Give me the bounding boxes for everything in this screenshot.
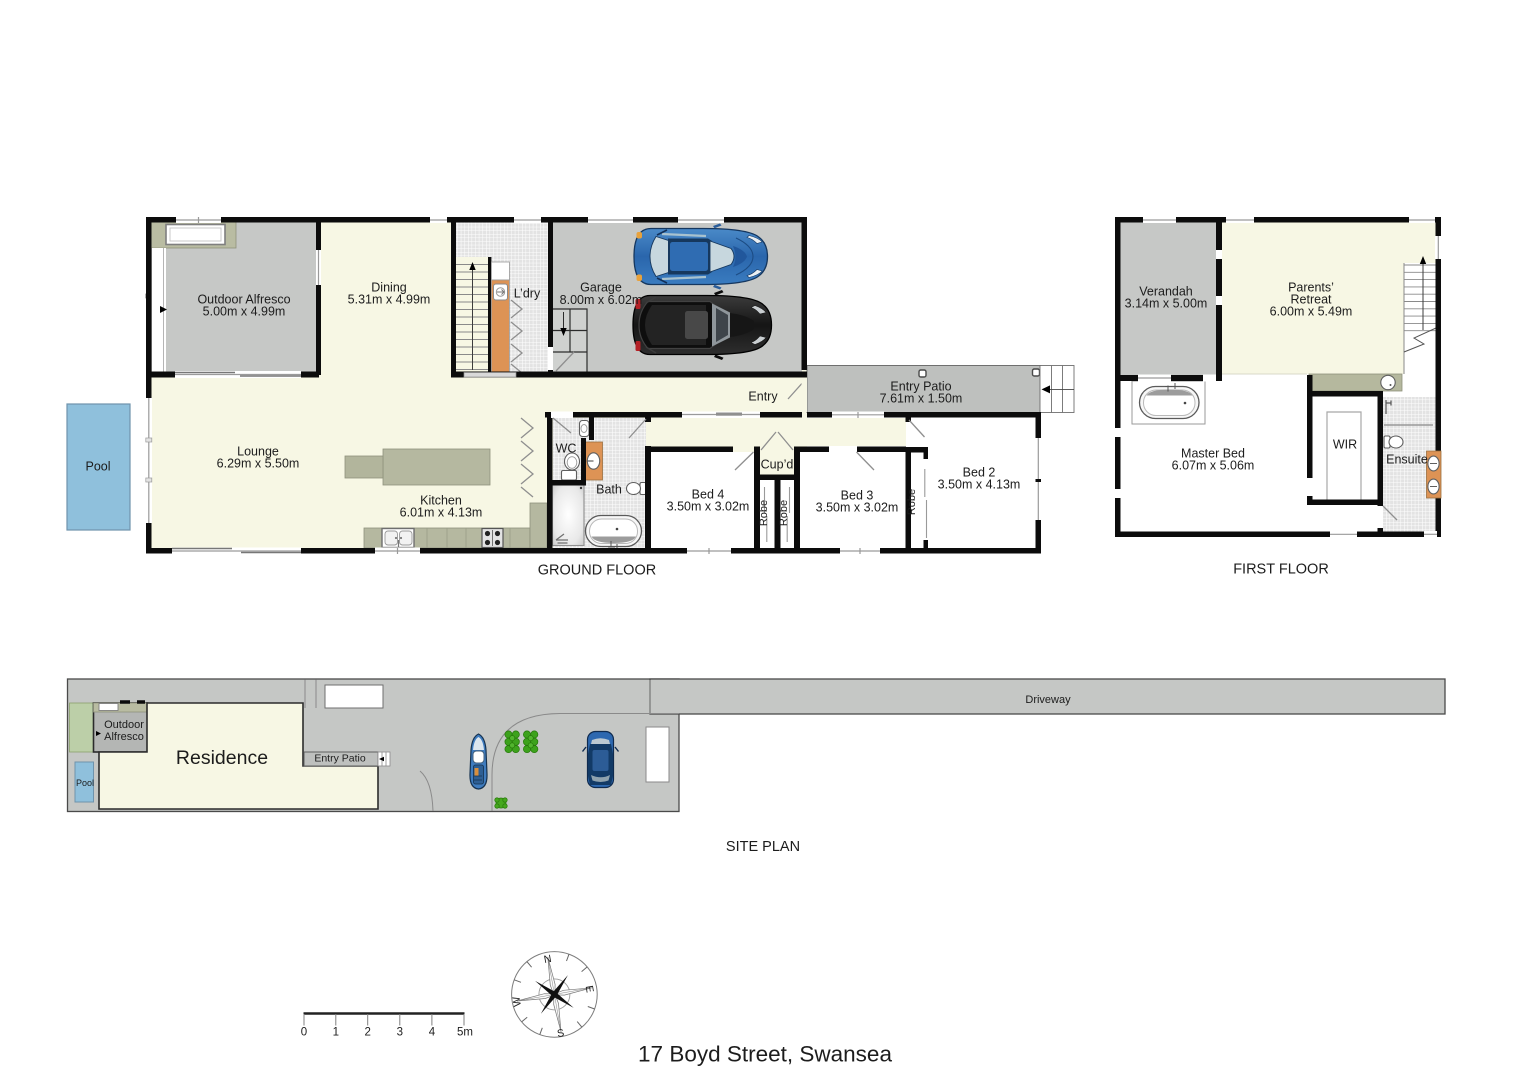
svg-text:Outdoor: Outdoor bbox=[104, 719, 144, 731]
svg-text:3.50m x 3.02m: 3.50m x 3.02m bbox=[667, 499, 750, 513]
svg-text:3.50m x 4.13m: 3.50m x 4.13m bbox=[938, 477, 1021, 491]
svg-text:5.00m x 4.99m: 5.00m x 4.99m bbox=[203, 304, 286, 318]
svg-text:6.00m x 5.49m: 6.00m x 5.49m bbox=[1270, 304, 1353, 318]
svg-text:N: N bbox=[543, 953, 553, 966]
svg-text:Robe: Robe bbox=[778, 500, 790, 526]
svg-text:E: E bbox=[583, 985, 596, 994]
svg-text:S: S bbox=[556, 1027, 565, 1040]
svg-text:Robe: Robe bbox=[906, 489, 918, 515]
svg-text:Ensuite: Ensuite bbox=[1386, 452, 1428, 466]
svg-text:Pool: Pool bbox=[76, 778, 94, 788]
svg-text:2: 2 bbox=[364, 1027, 370, 1039]
svg-text:Entry: Entry bbox=[748, 389, 778, 403]
svg-text:W: W bbox=[510, 996, 524, 1008]
svg-text:3.50m x 3.02m: 3.50m x 3.02m bbox=[816, 500, 899, 514]
svg-text:WC: WC bbox=[556, 441, 577, 455]
svg-text:8.00m x 6.02m: 8.00m x 6.02m bbox=[560, 293, 643, 307]
svg-text:Residence: Residence bbox=[176, 747, 268, 769]
svg-text:SITE PLAN: SITE PLAN bbox=[726, 839, 800, 855]
svg-text:WIR: WIR bbox=[1333, 437, 1357, 451]
svg-text:7.61m x 1.50m: 7.61m x 1.50m bbox=[880, 391, 963, 405]
svg-text:1: 1 bbox=[333, 1027, 339, 1039]
svg-text:Alfresco: Alfresco bbox=[104, 731, 144, 743]
svg-text:Robe: Robe bbox=[758, 500, 770, 526]
svg-text:0: 0 bbox=[301, 1027, 307, 1039]
svg-text:6.07m x 5.06m: 6.07m x 5.06m bbox=[1172, 458, 1255, 472]
svg-text:GROUND FLOOR: GROUND FLOOR bbox=[538, 563, 656, 579]
svg-text:Pool: Pool bbox=[85, 459, 110, 473]
svg-text:Bath: Bath bbox=[596, 482, 622, 496]
svg-text:17 Boyd Street, Swansea: 17 Boyd Street, Swansea bbox=[638, 1042, 892, 1067]
svg-text:6.01m x 4.13m: 6.01m x 4.13m bbox=[400, 505, 483, 519]
svg-text:L’dry: L’dry bbox=[514, 286, 541, 300]
svg-text:6.29m x 5.50m: 6.29m x 5.50m bbox=[217, 456, 300, 470]
svg-text:5.31m x 4.99m: 5.31m x 4.99m bbox=[348, 292, 431, 306]
svg-text:Cup’d: Cup’d bbox=[761, 457, 794, 471]
svg-text:5m: 5m bbox=[457, 1027, 473, 1039]
svg-text:Entry Patio: Entry Patio bbox=[314, 753, 366, 765]
svg-text:FIRST FLOOR: FIRST FLOOR bbox=[1233, 562, 1329, 578]
svg-text:4: 4 bbox=[429, 1027, 436, 1039]
svg-text:3: 3 bbox=[397, 1027, 403, 1039]
svg-text:Driveway: Driveway bbox=[1025, 694, 1071, 706]
svg-text:3.14m x 5.00m: 3.14m x 5.00m bbox=[1125, 296, 1208, 310]
